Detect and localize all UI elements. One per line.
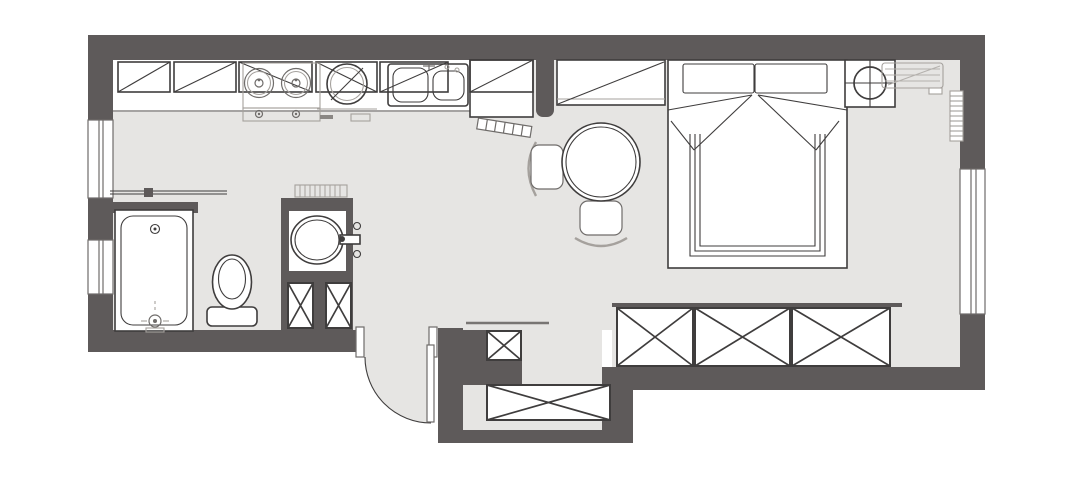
- entry-closet-icon: [557, 60, 665, 105]
- wall-niche-bottom: [488, 360, 522, 385]
- floor-plan-page: [0, 0, 1080, 477]
- wall-bottom-right: [602, 367, 985, 390]
- wall-bathroom-bottom: [88, 330, 358, 352]
- wall-niche-left: [463, 330, 488, 385]
- wardrobe-3-icon: [792, 308, 890, 366]
- wardrobe-row: [617, 308, 890, 366]
- floor-door-swing-area: [365, 357, 431, 423]
- floor-plan-drawing: [0, 0, 1080, 477]
- dining-table-icon: [562, 123, 640, 201]
- wardrobe-1-icon: [617, 308, 693, 366]
- entry-niche-cabinet-icon: [487, 331, 521, 360]
- door-leaf: [427, 345, 434, 422]
- right-window-icon: [960, 169, 985, 314]
- left-window-lower-icon: [88, 240, 113, 294]
- left-window-upper-icon: [88, 120, 113, 198]
- upper-cabinets-icon: [118, 60, 533, 92]
- radiator-icon: [950, 91, 963, 141]
- bathtub-icon: [115, 210, 193, 332]
- wall-alcove-bottom: [438, 430, 633, 443]
- wall-left-middle: [88, 198, 113, 240]
- wall-left-upper: [88, 35, 113, 120]
- wardrobe-2-icon: [695, 308, 790, 366]
- door-jamb-left: [356, 327, 364, 357]
- wall-right-upper: [960, 35, 985, 169]
- shoe-cabinet-icon: [487, 385, 610, 420]
- wall-entry-column: [438, 328, 463, 443]
- wall-kitchen-stub: [536, 50, 554, 117]
- bedside-table-icon: [845, 60, 895, 107]
- bed-icon: [668, 60, 847, 268]
- wall-wardrobe-back-strip: [612, 303, 902, 307]
- floor-door-opening: [364, 330, 430, 357]
